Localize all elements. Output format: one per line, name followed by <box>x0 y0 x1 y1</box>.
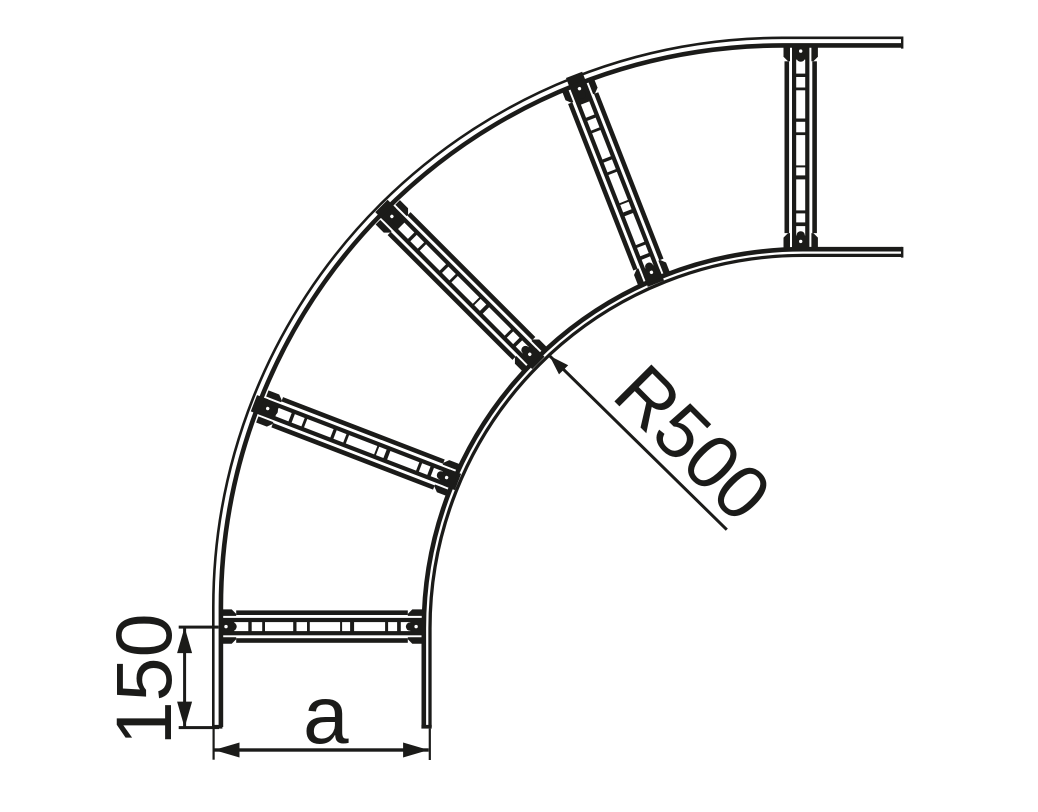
svg-text:a: a <box>303 670 349 761</box>
svg-text:R500: R500 <box>598 349 787 538</box>
svg-text:150: 150 <box>99 613 188 745</box>
